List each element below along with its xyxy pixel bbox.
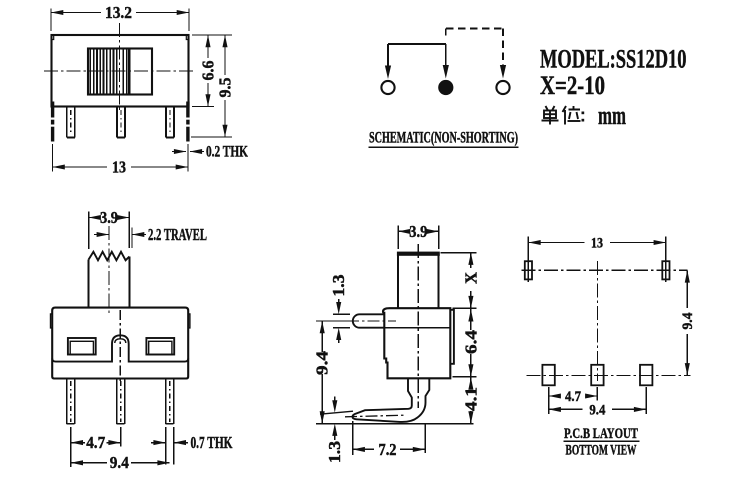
svg-text:13.2: 13.2 <box>105 3 132 22</box>
svg-text:9.4: 9.4 <box>589 402 605 418</box>
svg-text:9.4: 9.4 <box>313 351 332 375</box>
svg-text:0.7 THK: 0.7 THK <box>191 433 233 452</box>
svg-text:P.C.B LAYOUT: P.C.B LAYOUT <box>564 426 638 442</box>
svg-text:4.7: 4.7 <box>86 433 105 452</box>
svg-text:X=2-10: X=2-10 <box>540 70 605 100</box>
svg-text:0.2 THK: 0.2 THK <box>206 144 248 161</box>
svg-text:1.3: 1.3 <box>325 441 344 463</box>
svg-text:7.2: 7.2 <box>379 440 397 459</box>
svg-text:1.3: 1.3 <box>329 275 348 297</box>
svg-text:9.4: 9.4 <box>680 312 696 329</box>
svg-text:mm: mm <box>598 100 626 130</box>
svg-text:4.1: 4.1 <box>461 387 480 411</box>
svg-text:2.2 TRAVEL: 2.2 TRAVEL <box>148 225 207 244</box>
svg-text:13: 13 <box>591 235 603 251</box>
svg-text:6.4: 6.4 <box>461 330 480 354</box>
svg-text:X: X <box>461 272 480 284</box>
svg-text:SCHEMATIC(NON-SHORTING): SCHEMATIC(NON-SHORTING) <box>369 130 518 147</box>
svg-text:3.9: 3.9 <box>409 222 427 241</box>
svg-text:9.4: 9.4 <box>110 453 129 472</box>
svg-text:MODEL:SS12D10: MODEL:SS12D10 <box>540 44 687 74</box>
svg-text:BOTTOM VIEW: BOTTOM VIEW <box>566 443 637 459</box>
svg-text:13: 13 <box>112 158 126 177</box>
svg-text:4.7: 4.7 <box>565 389 581 405</box>
svg-text:9.5: 9.5 <box>216 78 235 98</box>
svg-text:3.9: 3.9 <box>100 208 118 227</box>
